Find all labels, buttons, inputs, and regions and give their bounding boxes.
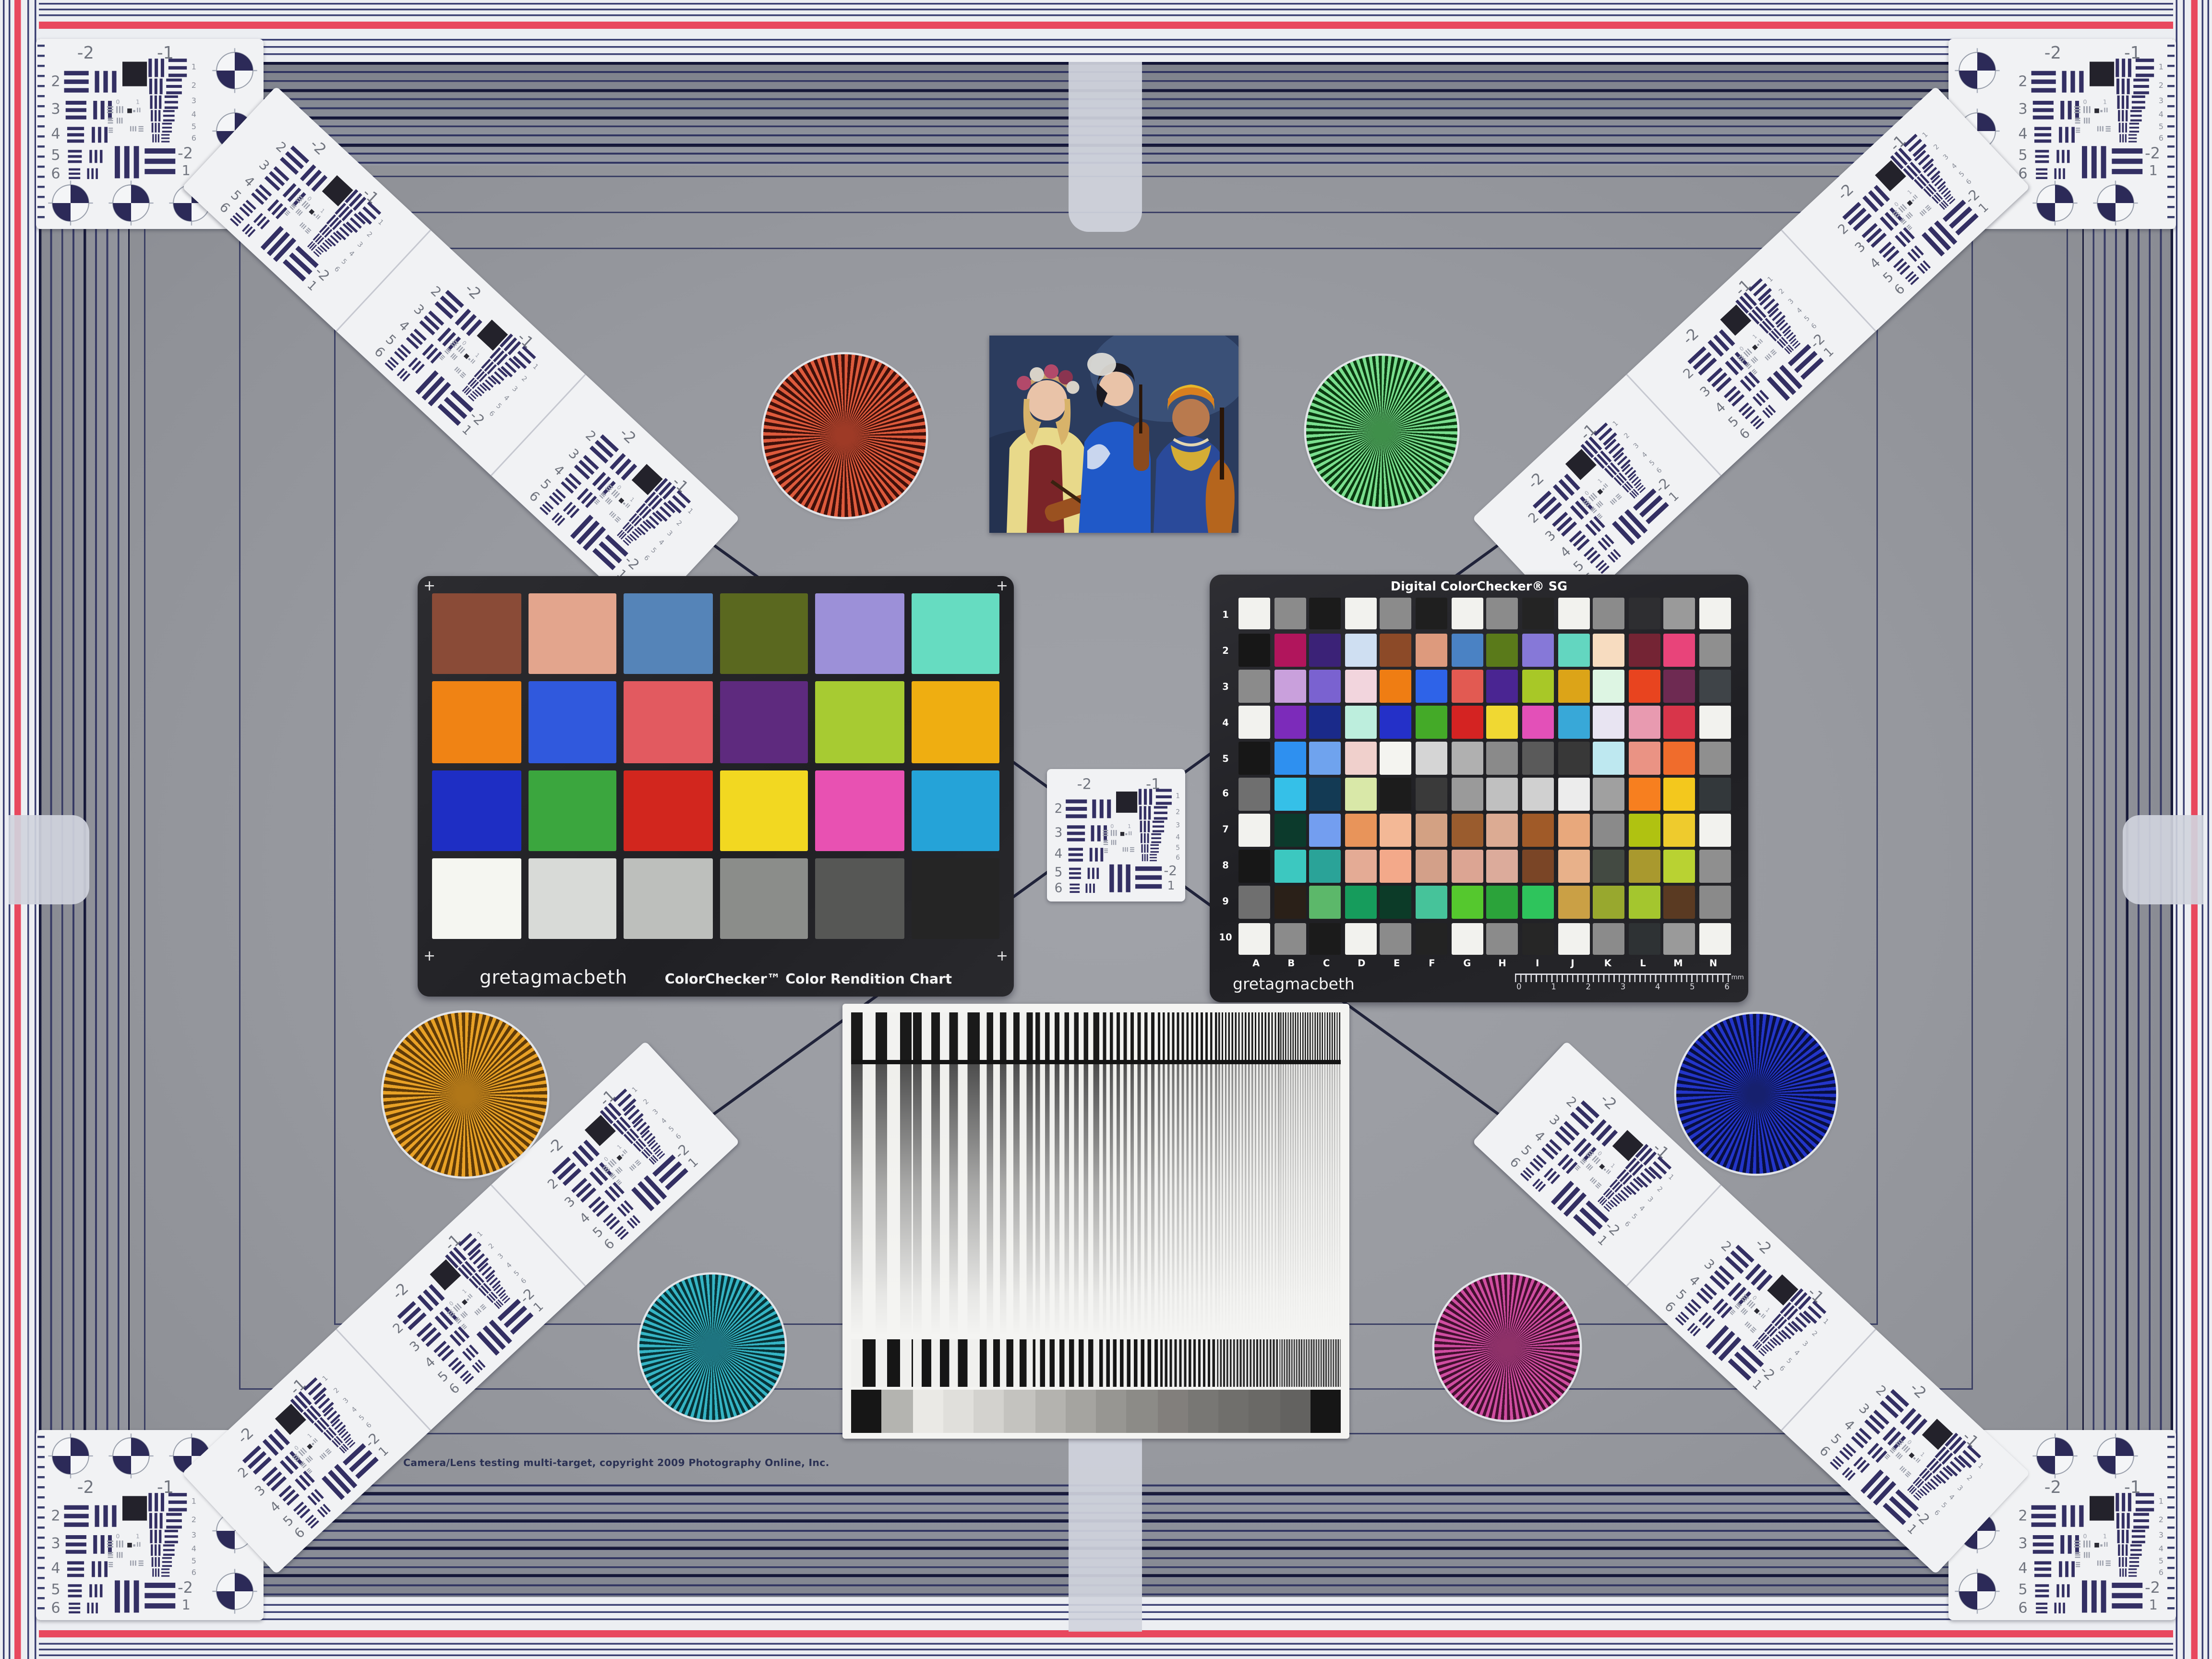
sg-title: Digital ColorChecker® SG <box>1210 580 1748 594</box>
color-patch <box>1558 742 1589 774</box>
sg-ruler-number: 0 <box>1516 984 1522 992</box>
sg-column-label: A <box>1238 958 1274 969</box>
color-patch <box>1664 670 1695 702</box>
color-patch <box>1380 850 1412 882</box>
color-patch <box>1487 886 1518 918</box>
color-patch <box>1345 706 1376 738</box>
sg-column-labels: ABCDEFGHIJKLMN <box>1238 958 1731 969</box>
sg-brand: gretagmacbeth <box>1233 975 1355 994</box>
color-patch <box>720 593 808 674</box>
color-patch <box>1593 634 1624 666</box>
sg-ruler-number: 3 <box>1621 984 1626 992</box>
color-patch <box>1274 923 1306 955</box>
color-patch <box>1380 634 1412 666</box>
color-patch <box>1593 886 1624 918</box>
color-patch <box>1593 706 1624 738</box>
gray-step <box>1157 1389 1188 1432</box>
sg-ruler-number: 6 <box>1724 984 1730 992</box>
color-patch <box>1238 923 1270 955</box>
sweep-fade-field <box>851 1064 1341 1336</box>
gray-step <box>1127 1389 1157 1432</box>
siemens-star-blue <box>1676 1014 1836 1174</box>
color-patch <box>1451 814 1483 846</box>
color-patch <box>1380 778 1412 810</box>
color-patch <box>1664 634 1695 666</box>
color-patch <box>1274 706 1306 738</box>
sg-column-label: C <box>1309 958 1344 969</box>
gray-step <box>1004 1389 1035 1432</box>
color-patch <box>1664 598 1695 630</box>
fiducial-plus: + <box>996 950 1008 965</box>
sample-photo-musicians <box>989 336 1238 533</box>
color-patch <box>720 682 808 763</box>
color-patch <box>1628 886 1660 918</box>
sg-row-label: 8 <box>1215 860 1236 871</box>
color-patch <box>1345 886 1376 918</box>
registration-tab-right <box>2123 815 2203 904</box>
sg-column-label: E <box>1379 958 1414 969</box>
sweep-bar-band <box>851 1012 1341 1060</box>
sg-column-label: G <box>1450 958 1485 969</box>
color-patch <box>1558 634 1589 666</box>
sg-row-label: 6 <box>1215 788 1236 800</box>
color-patch <box>1699 850 1731 882</box>
color-patch <box>1628 814 1660 846</box>
color-patch <box>1487 706 1518 738</box>
sg-column-label: B <box>1274 958 1309 969</box>
color-patch <box>1628 634 1660 666</box>
color-patch <box>1310 706 1341 738</box>
color-patch <box>1345 634 1376 666</box>
color-patch <box>720 770 808 851</box>
sg-row-label: 9 <box>1215 895 1236 907</box>
color-patch <box>1593 778 1624 810</box>
color-patch <box>1380 742 1412 774</box>
sg-ruler-number: 5 <box>1690 984 1695 992</box>
colorchecker-grid <box>432 593 999 939</box>
fiducial-plus: + <box>996 580 1008 595</box>
test-chart-photo: -2 -1 2 3 4 5 6 <box>0 0 2212 1659</box>
sg-row-labels: 12345678910 <box>1215 598 1236 955</box>
sg-ruler-unit: mm <box>1731 975 1744 982</box>
color-patch <box>1238 742 1270 774</box>
sg-ruler: 0123456 <box>1515 974 1731 992</box>
color-patch <box>1451 598 1483 630</box>
color-patch <box>432 593 521 674</box>
ruler-ticks <box>37 45 45 223</box>
color-patch <box>1451 706 1483 738</box>
sg-column-label: F <box>1414 958 1449 969</box>
color-patch <box>815 770 904 851</box>
color-patch <box>1416 670 1447 702</box>
color-patch <box>1487 670 1518 702</box>
colorchecker-title: ColorChecker™ Color Rendition Chart <box>665 972 952 988</box>
color-patch <box>1274 886 1306 918</box>
color-patch <box>1487 814 1518 846</box>
color-patch <box>1699 742 1731 774</box>
color-patch <box>1310 923 1341 955</box>
color-patch <box>1310 886 1341 918</box>
color-patch <box>1310 850 1341 882</box>
color-patch <box>1699 886 1731 918</box>
color-patch <box>1416 886 1447 918</box>
color-patch <box>1310 634 1341 666</box>
color-patch <box>1274 850 1306 882</box>
color-patch <box>1664 814 1695 846</box>
color-patch <box>432 858 521 939</box>
sg-row-label: 1 <box>1215 610 1236 621</box>
color-patch <box>1380 923 1412 955</box>
color-patch <box>1664 886 1695 918</box>
color-patch <box>1522 850 1554 882</box>
ruler-ticks <box>2167 45 2175 223</box>
color-patch <box>1310 778 1341 810</box>
color-patch <box>1699 778 1731 810</box>
color-patch <box>1451 670 1483 702</box>
color-patch <box>1699 923 1731 955</box>
color-patch <box>1274 598 1306 630</box>
color-patch <box>911 593 1000 674</box>
color-patch <box>1487 923 1518 955</box>
color-patch <box>1487 598 1518 630</box>
gray-step <box>1065 1389 1096 1432</box>
color-patch <box>528 682 617 763</box>
color-patch <box>1593 742 1624 774</box>
color-patch <box>815 593 904 674</box>
color-patch <box>1451 923 1483 955</box>
color-patch <box>1416 598 1447 630</box>
color-patch <box>1345 923 1376 955</box>
color-patch <box>1380 886 1412 918</box>
sg-row-label: 4 <box>1215 717 1236 728</box>
sg-column-label: H <box>1485 958 1520 969</box>
color-patch <box>1238 706 1270 738</box>
color-patch <box>1522 634 1554 666</box>
sg-ruler-ticks <box>1515 974 1731 982</box>
color-patch <box>1664 850 1695 882</box>
color-patch <box>1487 742 1518 774</box>
color-patch <box>1487 634 1518 666</box>
color-patch <box>1628 598 1660 630</box>
siemens-star-green <box>1306 356 1457 507</box>
registration-tab-top <box>1069 62 1142 232</box>
gray-step <box>913 1389 943 1432</box>
sg-grid <box>1238 598 1731 955</box>
ruler-ticks <box>2167 1436 2175 1614</box>
color-patch <box>1558 923 1589 955</box>
color-patch <box>1451 634 1483 666</box>
color-patch <box>1238 886 1270 918</box>
fiducial-plus: + <box>423 580 435 595</box>
gray-step <box>943 1389 974 1432</box>
color-patch <box>1345 742 1376 774</box>
color-patch <box>1380 706 1412 738</box>
color-patch <box>815 682 904 763</box>
color-patch <box>1522 778 1554 810</box>
color-patch <box>1451 850 1483 882</box>
color-patch <box>1416 778 1447 810</box>
color-patch <box>1345 598 1376 630</box>
color-patch <box>1238 634 1270 666</box>
grayscale-step-wedge <box>851 1389 1341 1432</box>
color-patch <box>1699 706 1731 738</box>
color-patch <box>1310 670 1341 702</box>
color-patch <box>1699 598 1731 630</box>
siemens-star-magenta <box>1434 1274 1580 1420</box>
color-patch <box>1416 923 1447 955</box>
color-patch <box>1558 850 1589 882</box>
color-patch <box>1558 706 1589 738</box>
gray-step <box>1310 1389 1341 1432</box>
siemens-star-teal <box>639 1274 785 1420</box>
color-patch <box>1558 598 1589 630</box>
color-patch <box>815 858 904 939</box>
color-patch <box>1274 670 1306 702</box>
color-patch <box>1310 814 1341 846</box>
color-patch <box>1628 670 1660 702</box>
color-patch <box>1558 886 1589 918</box>
sg-ruler-number: 2 <box>1586 984 1591 992</box>
color-patch <box>1558 670 1589 702</box>
sg-row-label: 3 <box>1215 681 1236 693</box>
sg-column-label: L <box>1625 958 1660 969</box>
color-patch <box>1699 814 1731 846</box>
color-patch <box>624 682 712 763</box>
color-patch <box>1699 634 1731 666</box>
color-patch <box>1593 850 1624 882</box>
sg-column-label: N <box>1695 958 1731 969</box>
color-patch <box>1274 634 1306 666</box>
sg-row-label: 7 <box>1215 824 1236 836</box>
color-patch <box>1628 923 1660 955</box>
color-patch <box>528 858 617 939</box>
sg-column-label: D <box>1344 958 1379 969</box>
color-patch <box>624 858 712 939</box>
color-patch <box>432 770 521 851</box>
color-patch <box>1451 886 1483 918</box>
gray-step <box>1218 1389 1249 1432</box>
color-patch <box>1593 814 1624 846</box>
color-patch <box>1522 886 1554 918</box>
sg-column-label: J <box>1555 958 1590 969</box>
sweep-separator-line <box>851 1060 1341 1064</box>
gray-step <box>1280 1389 1310 1432</box>
gray-step <box>1249 1389 1280 1432</box>
color-patch <box>1664 742 1695 774</box>
color-patch <box>1274 778 1306 810</box>
gray-step <box>882 1389 913 1432</box>
gray-step <box>1096 1389 1127 1432</box>
sg-row-label: 10 <box>1215 931 1236 943</box>
sg-row-label: 2 <box>1215 646 1236 657</box>
color-patch <box>1345 778 1376 810</box>
color-patch <box>1558 814 1589 846</box>
color-patch <box>1238 670 1270 702</box>
color-patch <box>1558 778 1589 810</box>
color-patch <box>1310 598 1341 630</box>
color-patch <box>1451 778 1483 810</box>
color-patch <box>1238 850 1270 882</box>
sweep-inverse-band <box>851 1339 1341 1386</box>
center-resolution-target <box>1047 769 1185 902</box>
color-patch <box>624 770 712 851</box>
color-patch <box>1664 706 1695 738</box>
color-patch <box>1522 742 1554 774</box>
color-patch <box>1628 778 1660 810</box>
color-patch <box>1487 778 1518 810</box>
color-patch <box>1522 670 1554 702</box>
color-patch <box>1522 814 1554 846</box>
siemens-star-red <box>763 354 926 517</box>
color-patch <box>720 858 808 939</box>
fiducial-plus: + <box>423 950 435 965</box>
color-patch <box>1699 670 1731 702</box>
color-patch <box>911 858 1000 939</box>
colorchecker-24-chart: + + + + gretagmacbeth ColorChecker™ Colo… <box>418 576 1014 997</box>
color-patch <box>1345 850 1376 882</box>
sg-row-label: 5 <box>1215 753 1236 764</box>
color-patch <box>1238 598 1270 630</box>
color-patch <box>1416 706 1447 738</box>
color-patch <box>1416 814 1447 846</box>
gray-step <box>974 1389 1004 1432</box>
edge-pinstripes-top <box>0 0 2212 62</box>
color-patch <box>528 770 617 851</box>
color-patch <box>1664 778 1695 810</box>
color-patch <box>1522 923 1554 955</box>
gray-step <box>1188 1389 1218 1432</box>
sg-column-label: I <box>1520 958 1555 969</box>
color-patch <box>432 682 521 763</box>
registration-tab-left <box>9 815 89 904</box>
color-patch <box>528 593 617 674</box>
registration-tab-bottom <box>1069 1419 1142 1632</box>
color-patch <box>1628 850 1660 882</box>
color-patch <box>1487 850 1518 882</box>
sg-column-label: K <box>1590 958 1625 969</box>
color-patch <box>1593 923 1624 955</box>
color-patch <box>1274 814 1306 846</box>
color-patch <box>911 770 1000 851</box>
color-patch <box>1238 778 1270 810</box>
gray-step <box>851 1389 882 1432</box>
siemens-star-orange <box>383 1012 547 1177</box>
color-patch <box>1416 850 1447 882</box>
frequency-sweep-card <box>842 1004 1349 1439</box>
color-patch <box>1238 814 1270 846</box>
color-patch <box>1274 742 1306 774</box>
color-patch <box>1522 598 1554 630</box>
color-patch <box>1522 706 1554 738</box>
colorchecker-brand: gretagmacbeth <box>480 968 627 989</box>
color-patch <box>1380 598 1412 630</box>
color-patch <box>1345 670 1376 702</box>
color-patch <box>1345 814 1376 846</box>
copyright-text: Camera/Lens testing multi-target, copyri… <box>403 1457 829 1469</box>
gray-step <box>1035 1389 1066 1432</box>
color-patch <box>1628 706 1660 738</box>
color-patch <box>1451 742 1483 774</box>
color-patch <box>1416 634 1447 666</box>
color-patch <box>1628 742 1660 774</box>
sg-ruler-number: 4 <box>1655 984 1660 992</box>
color-patch <box>911 682 1000 763</box>
colorchecker-sg-chart: Digital ColorChecker® SG 12345678910 ABC… <box>1210 575 1748 1002</box>
color-patch <box>624 593 712 674</box>
color-patch <box>1380 814 1412 846</box>
ruler-ticks <box>37 1436 45 1614</box>
color-patch <box>1416 742 1447 774</box>
color-patch <box>1593 598 1624 630</box>
color-patch <box>1310 742 1341 774</box>
sg-ruler-number: 1 <box>1551 984 1556 992</box>
color-patch <box>1593 670 1624 702</box>
color-patch <box>1380 670 1412 702</box>
sg-column-label: M <box>1660 958 1695 969</box>
color-patch <box>1664 923 1695 955</box>
